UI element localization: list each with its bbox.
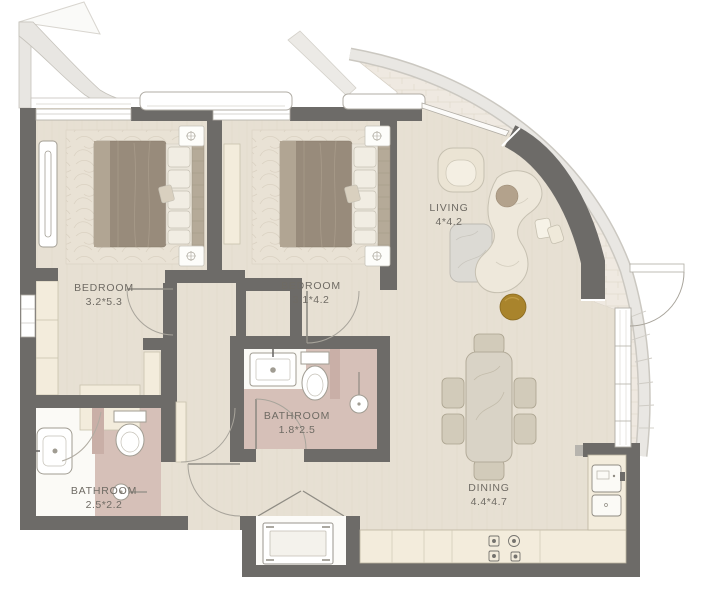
window-left-wall xyxy=(21,295,35,337)
label-bathroom1: BATHROOM 1.8*2.5 xyxy=(232,409,362,437)
washing-machine xyxy=(263,523,333,564)
label-living: LIVING 4*4.2 xyxy=(384,201,514,229)
dining-chair xyxy=(514,378,536,408)
bed-2 xyxy=(252,126,390,266)
dining-chair xyxy=(442,378,464,408)
window-strip-bedroom1-north xyxy=(36,109,131,120)
dining-chair xyxy=(514,414,536,444)
bay-window-2 xyxy=(343,94,425,109)
label-bedroom2: BEDROOM 3.1*4.2 xyxy=(246,279,376,307)
bay-window-1 xyxy=(140,92,292,110)
utility-closet xyxy=(256,516,346,565)
oven xyxy=(592,465,625,492)
nightstand xyxy=(179,246,204,266)
bed-1 xyxy=(66,126,204,266)
dining-chair xyxy=(474,334,504,354)
label-bathroom2: BATHROOM 2.5*2.2 xyxy=(39,484,169,512)
toilet xyxy=(114,411,146,456)
kitchen-counter xyxy=(360,530,626,563)
window-seat-bedroom1 xyxy=(39,141,57,247)
label-bedroom1: BEDROOM 3.2*5.3 xyxy=(39,281,169,309)
toilet xyxy=(301,352,329,400)
label-dining: DINING 4.4*4.7 xyxy=(424,481,554,509)
window-wall-dining xyxy=(615,308,631,447)
armchair xyxy=(438,148,484,192)
appliance-drawer xyxy=(592,495,621,516)
nightstand xyxy=(179,126,204,146)
dining-chair xyxy=(442,414,464,444)
dining-chair xyxy=(474,460,504,480)
window-strip-bedroom2-north xyxy=(213,109,290,120)
dining-table xyxy=(466,352,512,462)
floor-plan: BEDROOM 3.2*5.3 BEDROOM 3.1*4.2 LIVING 4… xyxy=(0,0,720,600)
gold-ottoman xyxy=(500,294,526,320)
sink xyxy=(250,349,296,386)
